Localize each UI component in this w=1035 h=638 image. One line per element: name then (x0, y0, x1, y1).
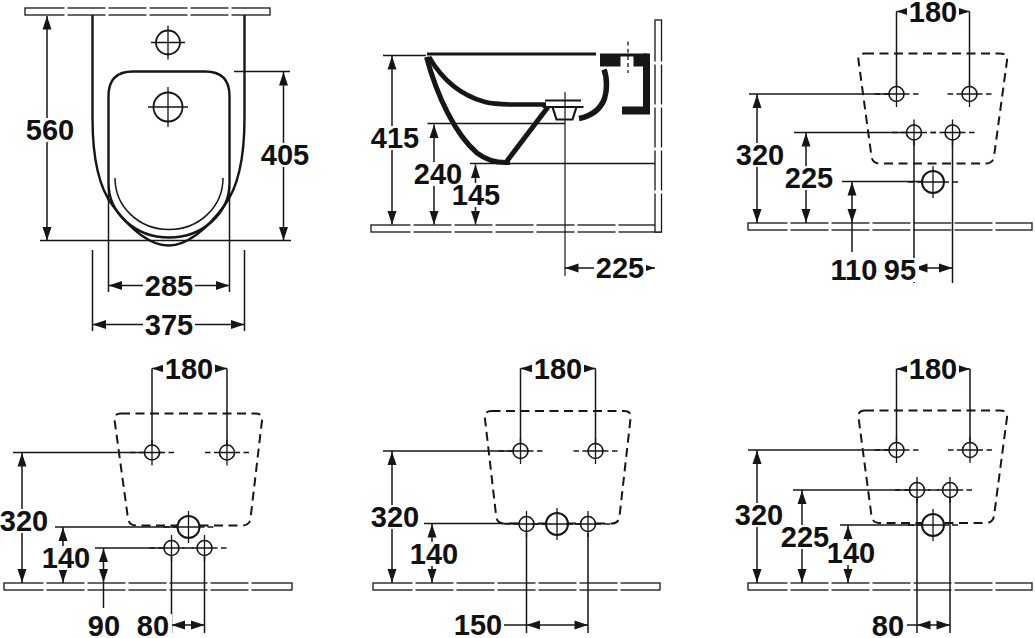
dim-label-180: 180 (534, 353, 582, 385)
dim-90 (99, 548, 108, 608)
dim-80 (917, 621, 950, 630)
panel-wall-fixing-3: 180 320 140 150 (369, 353, 660, 638)
panel4-labels: 180 320 140 90 80 (0, 353, 215, 638)
panel2-labels: 415 240 145 225 (369, 122, 646, 284)
dim-95 (914, 264, 953, 273)
fixing-hole-crosshair (205, 440, 249, 466)
bidet-section-profile (427, 42, 651, 163)
dim-label-375: 375 (145, 309, 193, 341)
panel-wall-fixing-4: 180 320 225 140 80 (733, 353, 1032, 638)
dim-label-320: 320 (735, 499, 783, 531)
panel-front-plan-view: 560 405 285 375 (24, 7, 311, 341)
dim-label-95: 95 (884, 254, 916, 286)
basin-inner-edge (115, 178, 223, 230)
fixing-hole-crosshair (948, 81, 992, 107)
dim-label-140: 140 (410, 538, 458, 570)
panel1-labels: 560 405 285 375 (24, 114, 311, 341)
tap-hole-crosshair (151, 26, 185, 60)
dim-label-180: 180 (909, 353, 957, 385)
dim-label-90: 90 (88, 610, 120, 638)
panel-wall-fixing-2: 180 320 140 90 80 (0, 353, 292, 638)
dim-label-415: 415 (371, 122, 419, 154)
dim-label-80: 80 (137, 610, 169, 638)
panel3-labels: 180 320 225 110 95 (734, 0, 959, 286)
tap-hole-notch (621, 57, 634, 69)
floor-hatch-bar (373, 582, 660, 592)
floor-hatch-bar (371, 224, 661, 234)
wall-hatch-bar (25, 7, 270, 17)
bidet-back-outline-dashed (485, 411, 631, 524)
fixing-hole-crosshair (948, 437, 992, 463)
panel5-labels: 180 320 140 150 (369, 353, 584, 638)
dim-label-320: 320 (736, 139, 784, 171)
dim-label-225: 225 (785, 162, 833, 194)
panel-side-section-view: 415 240 145 225 (369, 20, 663, 284)
floor-hatch-bar (4, 582, 292, 592)
dim-label-560: 560 (26, 114, 74, 146)
fixing-hole-crosshair (574, 438, 618, 464)
bidet-back-outline-dashed (858, 411, 1007, 524)
bidet-dimension-drawing: 560 405 285 375 (0, 0, 1035, 638)
bidet-back-outline-dashed (114, 414, 262, 526)
dim-label-80: 80 (872, 610, 904, 638)
dim-label-150: 150 (454, 609, 502, 638)
dim-label-140: 140 (42, 542, 90, 574)
bidet-back-outline-dashed (858, 54, 1007, 164)
dim-label-405: 405 (261, 139, 309, 171)
dim-label-320: 320 (0, 505, 48, 537)
wall-hatch-bar (654, 20, 664, 232)
supply-hole-crosshair (931, 120, 975, 146)
dim-110 (848, 182, 857, 253)
dim-label-225-side: 225 (596, 252, 644, 284)
dim-label-140: 140 (827, 537, 875, 569)
floor-hatch-bar (748, 582, 1032, 592)
floor-hatch-bar (748, 222, 1032, 232)
dim-label-180: 180 (165, 353, 213, 385)
dim-label-180: 180 (909, 0, 957, 28)
dim-150 (527, 621, 589, 630)
supply-hole-crosshair (148, 87, 188, 127)
panel-wall-fixing-1: 180 320 225 110 95 (734, 0, 1032, 286)
dim-label-320: 320 (371, 501, 419, 533)
dim-80 (172, 621, 205, 630)
dim-label-110: 110 (831, 254, 878, 286)
dim-label-145: 145 (452, 179, 500, 211)
outlet-spigot (622, 107, 650, 115)
dim-label-285: 285 (145, 270, 193, 302)
technical-drawing-page: 560 405 285 375 (0, 0, 1035, 638)
back-mounting-face (643, 54, 650, 109)
dim-label-225: 225 (781, 521, 829, 553)
panel6-labels: 180 320 225 140 80 (733, 353, 959, 638)
